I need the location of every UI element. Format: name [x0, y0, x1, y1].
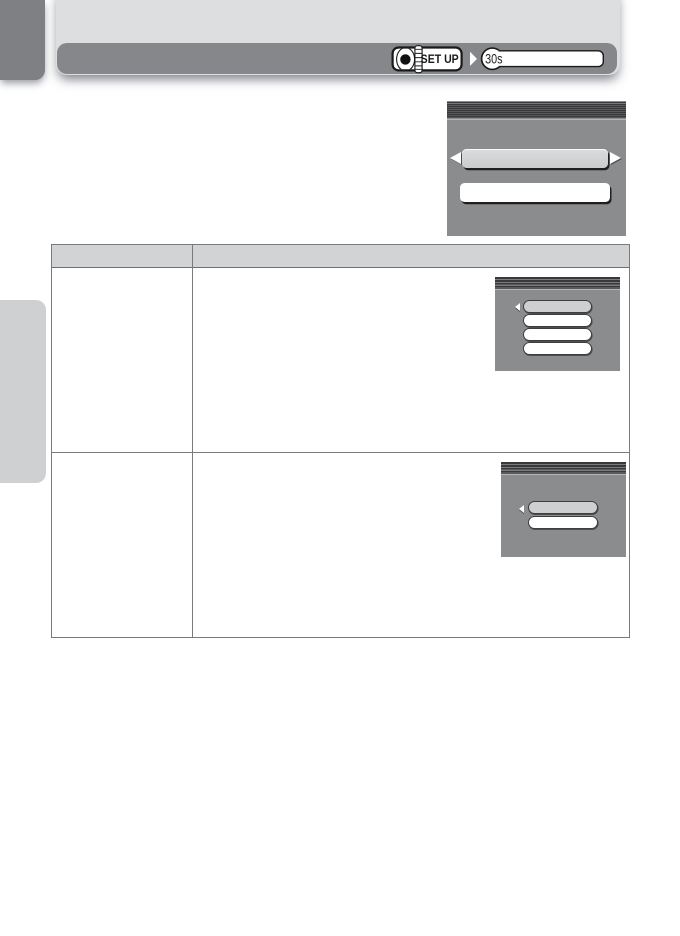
- svg-text:30s: 30s: [485, 51, 502, 66]
- svg-text:SET UP: SET UP: [421, 54, 459, 67]
